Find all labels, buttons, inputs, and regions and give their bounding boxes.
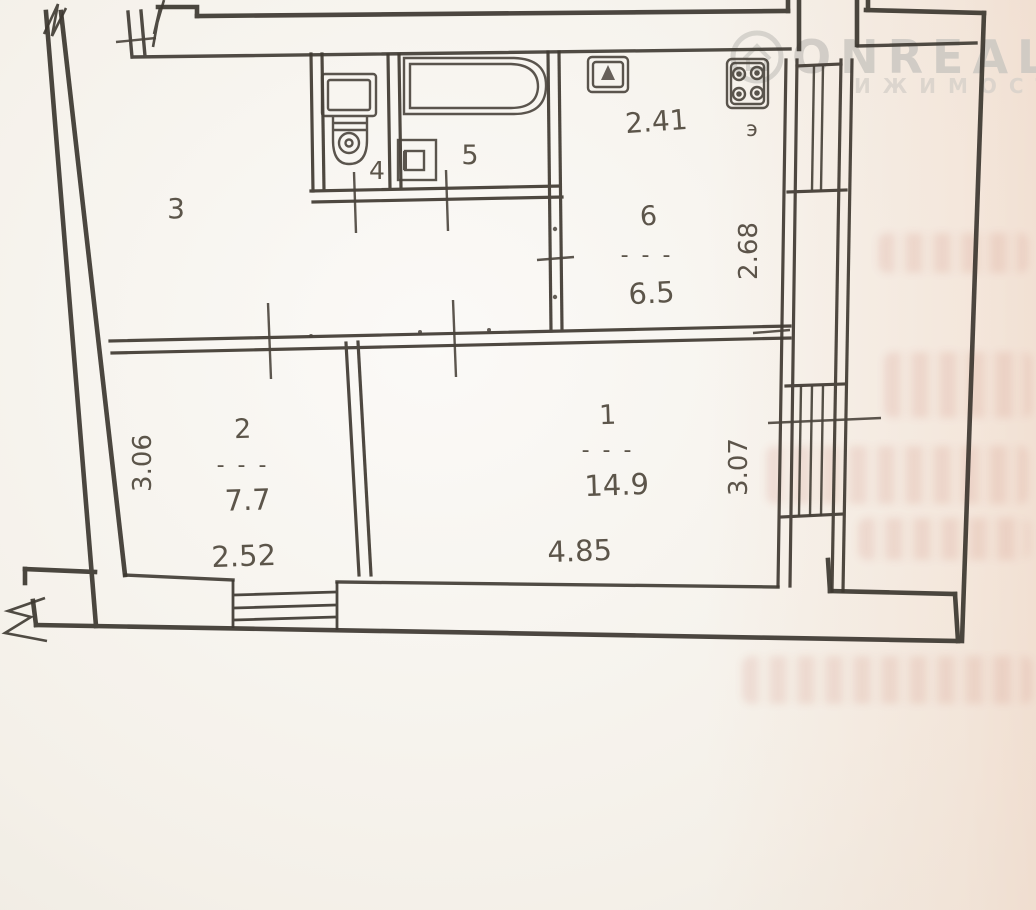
floor-plan-svg: 2.41 э 6 - - - 6.5 2.68 3 4 5 2 - - - 7.… — [0, 0, 1036, 910]
bathtub-icon — [404, 58, 546, 114]
entrance-steps — [233, 580, 337, 630]
room-2-width-dimension: 2.52 — [211, 538, 277, 574]
stove-icon — [727, 59, 768, 108]
room-1-separator: - - - — [582, 438, 635, 463]
toilet-icon — [322, 74, 376, 164]
room-1-depth-dimension: 3.07 — [724, 438, 754, 496]
room-2-area: 7.7 — [224, 482, 271, 518]
room-1-number: 1 — [599, 400, 617, 432]
room-3-number: 3 — [167, 192, 185, 225]
room-6-separator: - - - — [621, 243, 674, 268]
kitchen-width-dimension: 2.41 — [624, 103, 688, 140]
room-5-number: 5 — [461, 140, 478, 171]
kitchen-depth-dimension: 2.68 — [734, 222, 764, 280]
room-2-number: 2 — [234, 414, 252, 446]
room-6-number: 6 — [639, 201, 658, 233]
scanned-floor-plan-photo: ONREALT ИЖИМОСТ — [0, 0, 1036, 910]
loggia-window-mullions — [799, 66, 823, 516]
kitchen-sink-icon — [588, 57, 628, 92]
room-2-separator: - - - — [217, 453, 270, 478]
dimension-ticks — [116, 38, 881, 423]
room-1-width-dimension: 4.85 — [547, 533, 613, 569]
wall-break-symbols — [5, 0, 164, 641]
room-2-depth-dimension: 3.06 — [128, 434, 158, 492]
sink-icon — [398, 140, 436, 180]
electric-stove-marker: э — [746, 117, 758, 141]
door-hinge-dots — [309, 227, 557, 338]
room-4-number: 4 — [369, 156, 385, 185]
room-6-area: 6.5 — [628, 275, 676, 311]
room-1-area: 14.9 — [584, 467, 650, 503]
